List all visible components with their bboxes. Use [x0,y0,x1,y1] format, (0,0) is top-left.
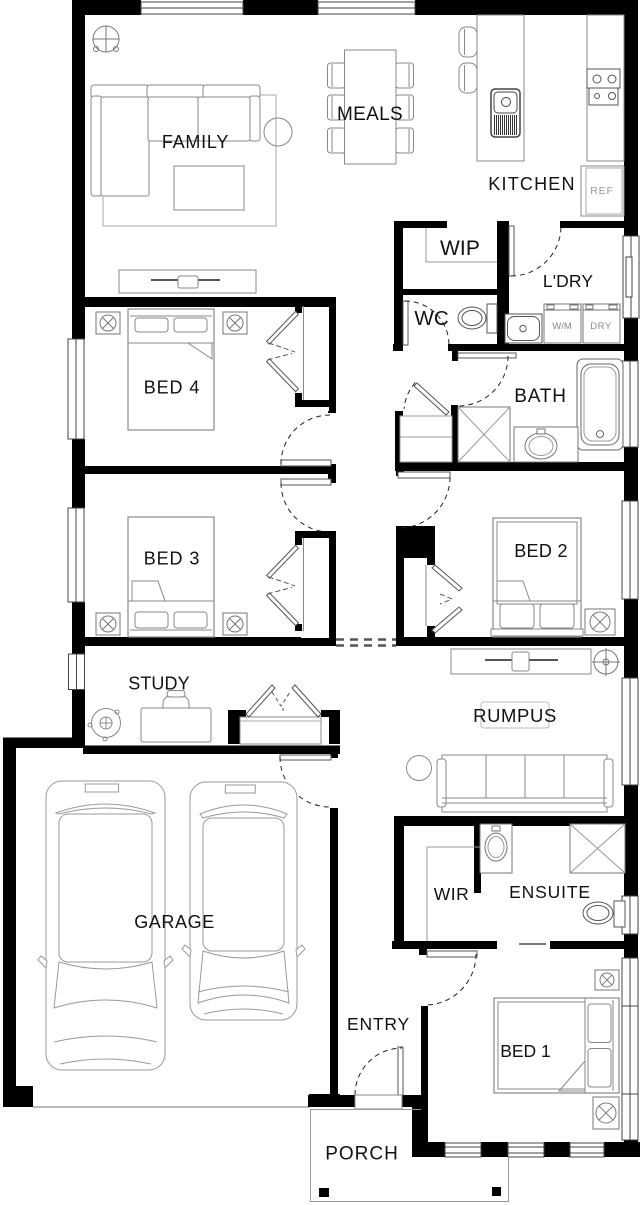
svg-text:L'DRY: L'DRY [543,271,593,291]
svg-text:PORCH: PORCH [325,1144,399,1165]
svg-text:RUMPUS: RUMPUS [473,705,557,726]
svg-text:WC: WC [414,307,448,330]
svg-text:ENSUITE: ENSUITE [509,882,591,902]
svg-text:WIP: WIP [440,237,480,260]
svg-text:REF: REF [590,185,613,197]
svg-text:DRY: DRY [590,321,612,332]
svg-text:GARAGE: GARAGE [134,912,215,932]
svg-text:ENTRY: ENTRY [347,1014,410,1034]
svg-text:BED 2: BED 2 [514,541,568,561]
svg-text:BATH: BATH [514,386,566,407]
svg-text:BED 1: BED 1 [500,1041,551,1061]
svg-text:BED 3: BED 3 [144,549,201,569]
svg-text:KITCHEN: KITCHEN [488,174,575,194]
svg-text:BED 4: BED 4 [144,378,201,398]
svg-text:MEALS: MEALS [337,104,403,125]
svg-text:FAMILY: FAMILY [162,132,229,152]
svg-text:W/M: W/M [552,321,572,332]
svg-text:STUDY: STUDY [128,674,190,694]
svg-text:WIR: WIR [434,884,470,904]
